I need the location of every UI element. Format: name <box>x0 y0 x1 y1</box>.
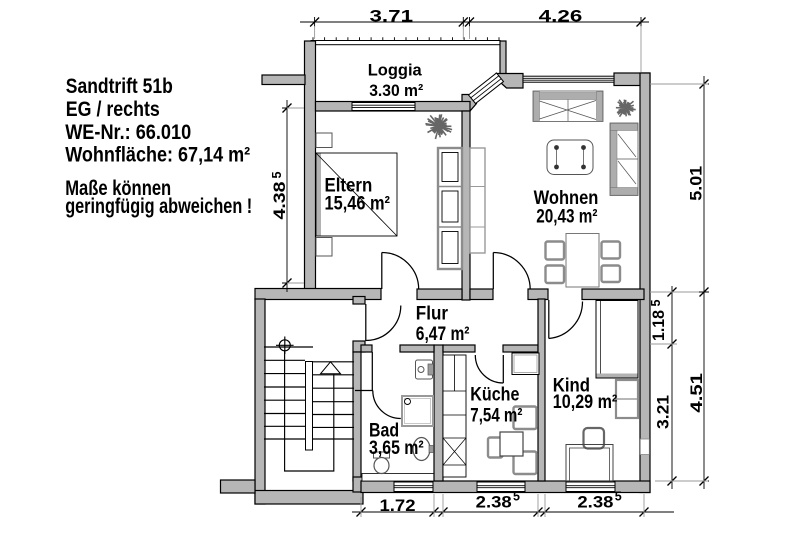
svg-text:2.38: 2.38 <box>577 493 613 512</box>
svg-text:5: 5 <box>513 490 520 504</box>
svg-text:1.72: 1.72 <box>380 496 416 515</box>
svg-text:20,43 m²: 20,43 m² <box>536 206 598 228</box>
svg-text:1.18: 1.18 <box>649 310 668 341</box>
svg-text:Flur: Flur <box>416 302 449 324</box>
svg-text:3.30 m²: 3.30 m² <box>369 81 423 100</box>
svg-text:6,47 m²: 6,47 m² <box>416 323 470 345</box>
svg-text:4.26: 4.26 <box>539 7 583 26</box>
svg-text:WE-Nr.: 66.010: WE-Nr.: 66.010 <box>65 121 191 144</box>
svg-text:7,54 m²: 7,54 m² <box>470 405 522 427</box>
svg-text:Sandtrift 51b: Sandtrift 51b <box>66 75 173 98</box>
svg-text:4.51: 4.51 <box>687 373 706 413</box>
svg-text:geringfügig abweichen !: geringfügig abweichen ! <box>65 195 252 218</box>
svg-text:5.01: 5.01 <box>687 166 706 201</box>
svg-text:Loggia: Loggia <box>368 61 423 80</box>
svg-text:5: 5 <box>615 490 622 504</box>
svg-text:2.38: 2.38 <box>476 493 512 512</box>
svg-text:5: 5 <box>270 172 284 179</box>
svg-text:3.71: 3.71 <box>370 7 414 26</box>
svg-text:Küche: Küche <box>470 383 519 405</box>
svg-text:15,46 m²: 15,46 m² <box>325 193 391 215</box>
svg-text:3,65 m²: 3,65 m² <box>369 437 424 459</box>
svg-text:Wohnfläche: 67,14 m²: Wohnfläche: 67,14 m² <box>65 144 250 167</box>
svg-text:4.38: 4.38 <box>270 182 289 220</box>
svg-text:3.21: 3.21 <box>653 395 672 429</box>
svg-text:EG / rechts: EG / rechts <box>66 98 160 121</box>
svg-text:10,29 m²: 10,29 m² <box>553 391 618 413</box>
svg-text:5: 5 <box>649 300 663 307</box>
